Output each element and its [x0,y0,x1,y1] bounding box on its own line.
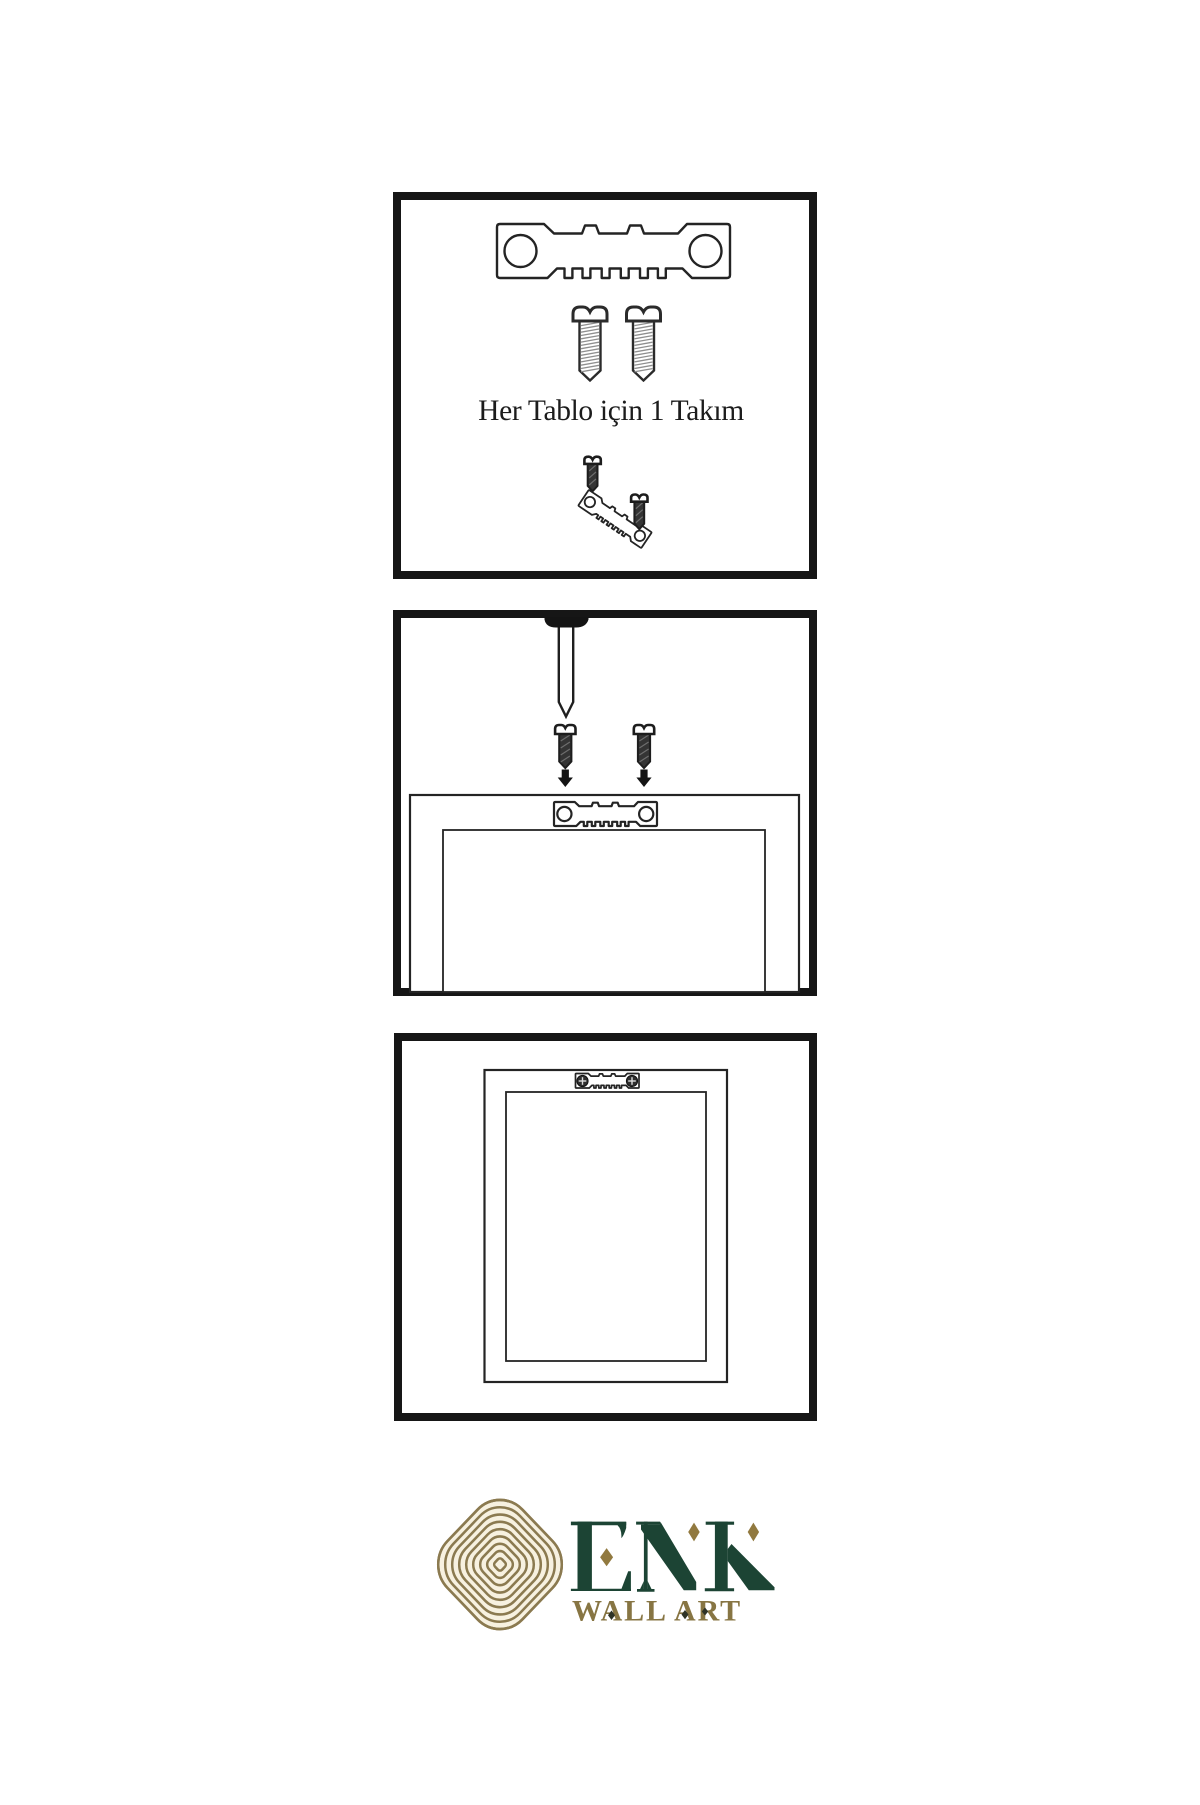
svg-text:Her Tablo için 1 Takım: Her Tablo için 1 Takım [478,395,744,427]
svg-text:WALL ART: WALL ART [572,1595,742,1628]
